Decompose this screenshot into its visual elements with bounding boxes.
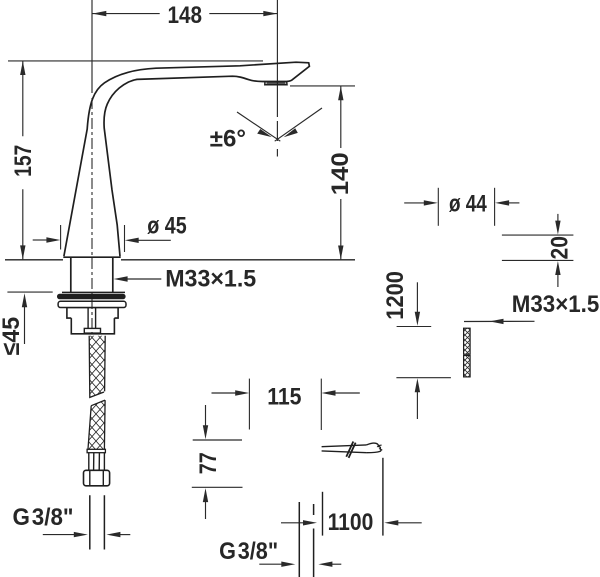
svg-text:77: 77 — [195, 452, 222, 474]
svg-text:≤45: ≤45 — [0, 317, 25, 356]
svg-text:1100: 1100 — [328, 509, 374, 536]
svg-text:1200: 1200 — [382, 271, 409, 320]
svg-text:140: 140 — [327, 152, 354, 195]
svg-text:ø 45: ø 45 — [147, 212, 186, 239]
svg-text:157: 157 — [10, 145, 37, 177]
svg-text:M33×1.5: M33×1.5 — [512, 291, 600, 318]
svg-text:±6°: ±6° — [210, 126, 246, 153]
svg-text:ø 44: ø 44 — [449, 191, 487, 218]
svg-text:148: 148 — [168, 2, 203, 29]
svg-text:M33×1.5: M33×1.5 — [165, 265, 256, 292]
svg-text:20: 20 — [546, 236, 573, 260]
svg-text:G 3/8": G 3/8" — [13, 504, 74, 531]
svg-text:G 3/8": G 3/8" — [219, 538, 278, 565]
svg-text:115: 115 — [267, 384, 301, 411]
